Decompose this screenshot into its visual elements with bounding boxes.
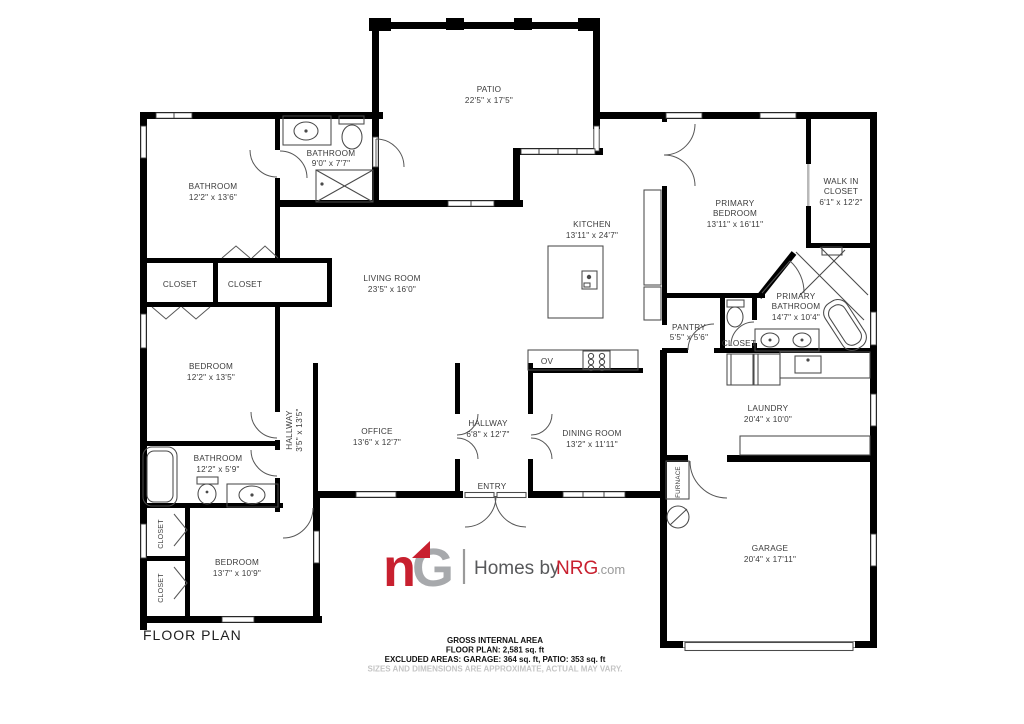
room-dims-primary-bedroom: 13'11" x 16'11" (707, 220, 764, 229)
room-dims-bathroom-bottom: 12'2" x 5'9" (196, 465, 239, 474)
room-dims-dining-room: 13'2" x 11'11" (566, 440, 618, 449)
room-label-primary-bedroom-1: PRIMARY (716, 199, 755, 208)
room-label-living-room: LIVING ROOM (363, 274, 420, 283)
room-label-closet-wc: CLOSET (722, 339, 756, 348)
room-label-primary-bathroom-1: PRIMARY (777, 292, 816, 301)
room-dims-kitchen: 13'11" x 24'7" (566, 231, 618, 240)
room-dims-bathroom-left: 12'2" x 13'6" (189, 193, 237, 202)
room-label-bathroom-small: BATHROOM (307, 149, 356, 158)
room-dims-bathroom-small: 9'0" x 7'7" (312, 159, 351, 168)
room-label-entry: ENTRY (478, 482, 507, 491)
room-label-bathroom-left: BATHROOM (189, 182, 238, 191)
logo-com: .com (597, 562, 625, 577)
room-label-pantry: PANTRY (672, 323, 706, 332)
room-label-closet-a: CLOSET (163, 280, 197, 289)
room-dims-bedroom-left: 12'2" x 13'5" (187, 373, 235, 382)
room-dims-pantry: 5'5" x 5'6" (670, 333, 709, 342)
room-label-hallway-main: HALLWAY (468, 419, 508, 428)
nrg-logo: n G Homes by NRG .com (383, 538, 625, 598)
room-label-closet-b: CLOSET (228, 280, 262, 289)
kitchen-fixtures (528, 190, 661, 371)
room-dims-laundry: 20'4" x 10'0" (744, 415, 792, 424)
room-dims-hallway-main: 6'8" x 12'7" (466, 430, 509, 439)
room-label-closet-bed3-a: CLOSET (158, 519, 165, 549)
room-label-kitchen: KITCHEN (573, 220, 611, 229)
page-title: FLOOR PLAN (143, 627, 242, 643)
room-label-primary-bedroom-2: BEDROOM (713, 209, 757, 218)
room-label-laundry: LAUNDRY (748, 404, 789, 413)
room-dims-bedroom-bottom: 13'7" x 10'9" (213, 569, 261, 578)
disclaimer: SIZES AND DIMENSIONS ARE APPROXIMATE, AC… (368, 665, 623, 674)
floor-plan-page: PATIO 22'5" x 17'5" BATHROOM 9'0" x 7'7"… (0, 0, 1024, 724)
room-label-bedroom-left: BEDROOM (189, 362, 233, 371)
logo-homes-by: Homes by (474, 558, 560, 579)
room-label-bedroom-bottom: BEDROOM (215, 558, 259, 567)
room-label-primary-bathroom-2: BATHROOM (772, 302, 821, 311)
room-dims-garage: 20'4" x 17'11" (744, 555, 796, 564)
room-dims-walk-in-closet: 6'1" x 12'2" (819, 198, 862, 207)
room-dims-patio: 22'5" x 17'5" (465, 96, 513, 105)
footer-area-summary: GROSS INTERNAL AREA FLOOR PLAN: 2,581 sq… (368, 636, 623, 674)
room-label-bathroom-bottom: BATHROOM (194, 454, 243, 463)
room-label-hallway-small: HALLWAY (285, 410, 294, 450)
room-label-furnace: FURNACE (675, 466, 682, 498)
room-label-garage: GARAGE (752, 544, 789, 553)
doors (152, 124, 810, 599)
room-label-closet-bed3-b: CLOSET (158, 573, 165, 603)
room-label-walk-in-closet-2: CLOSET (824, 187, 858, 196)
gross-internal-area-title: GROSS INTERNAL AREA (447, 636, 543, 645)
room-dims-hallway-small: 3'5" x 13'5" (295, 408, 304, 451)
room-label-dining-room: DINING ROOM (562, 429, 621, 438)
room-dims-office: 13'6" x 12'7" (353, 438, 401, 447)
room-label-patio: PATIO (477, 85, 502, 94)
logo-nrg: NRG (556, 558, 598, 579)
floor-plan-drawing: PATIO 22'5" x 17'5" BATHROOM 9'0" x 7'7"… (0, 0, 1024, 724)
room-dims-primary-bathroom: 14'7" x 10'4" (772, 313, 820, 322)
room-label-office: OFFICE (361, 427, 393, 436)
excluded-areas: EXCLUDED AREAS: GARAGE: 364 sq. ft, PATI… (385, 655, 606, 664)
room-label-walk-in-closet-1: WALK IN (823, 177, 858, 186)
floor-plan-area: FLOOR PLAN: 2,581 sq. ft (446, 646, 545, 655)
oven-label: OV (541, 357, 554, 366)
logo-mark-g: G (412, 538, 454, 598)
room-dims-living-room: 23'5" x 16'0" (368, 285, 416, 294)
